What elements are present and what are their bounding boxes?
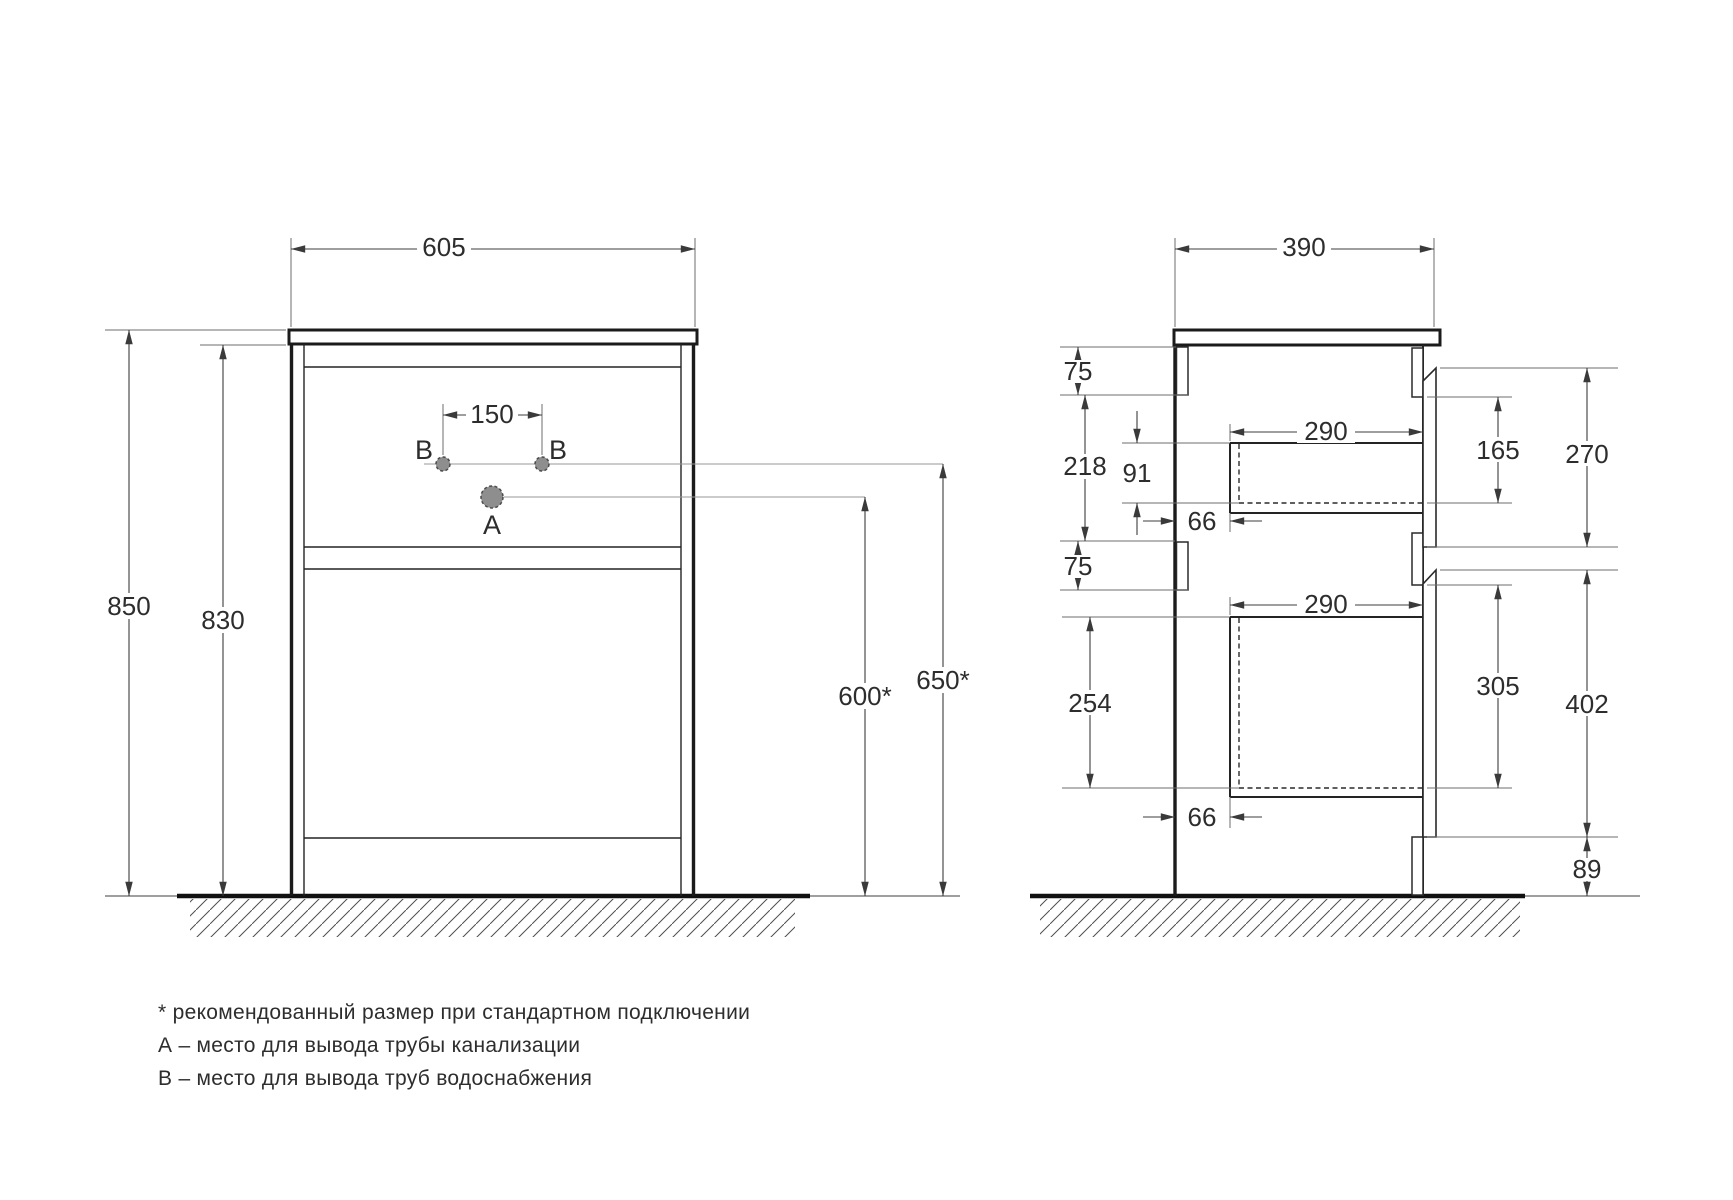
water-hole-right bbox=[535, 457, 549, 471]
dim-drain-height: 600* bbox=[838, 681, 892, 711]
technical-drawing-page: 605 850 830 150 B B A 600* 650* bbox=[0, 0, 1733, 1200]
dim-drawer2-depth: 290 bbox=[1304, 589, 1347, 619]
dim-drawer2-box: 305 bbox=[1476, 671, 1519, 701]
dim-back-top-gap: 218 bbox=[1063, 451, 1106, 481]
back-rail-mid bbox=[1177, 542, 1189, 590]
countertop-side bbox=[1174, 330, 1440, 345]
dim-holes-spacing: 150 bbox=[470, 399, 513, 429]
dim-plinth: 89 bbox=[1573, 854, 1602, 884]
hole-b-left-label: B bbox=[415, 435, 433, 465]
dim-drawer1-front: 270 bbox=[1565, 439, 1608, 469]
dim-drawer2-inner: 254 bbox=[1068, 688, 1111, 718]
dim-top-rail: 75 bbox=[1064, 356, 1093, 386]
hole-a-label: A bbox=[483, 510, 501, 540]
front-rail-bottom bbox=[1412, 837, 1423, 895]
front-rail-mid bbox=[1412, 533, 1423, 585]
drain-hole bbox=[481, 486, 503, 508]
dim-drawer1-back-gap: 66 bbox=[1188, 506, 1217, 536]
back-rail-top bbox=[1177, 347, 1189, 395]
floor-hatch bbox=[190, 899, 795, 937]
dim-drawer2-front: 402 bbox=[1565, 689, 1608, 719]
dim-height-body: 830 bbox=[201, 605, 244, 635]
countertop bbox=[289, 330, 697, 344]
dim-drawer2-back-gap: 66 bbox=[1188, 802, 1217, 832]
drawer-front-bottom bbox=[1423, 570, 1436, 837]
front-rail-top bbox=[1412, 348, 1423, 397]
footnote-hole-b: В – место для вывода труб водоснабжения bbox=[158, 1067, 592, 1090]
dim-mid-rail: 75 bbox=[1064, 551, 1093, 581]
hole-b-right-label: B bbox=[549, 435, 567, 465]
footnote-hole-a: А – место для вывода трубы канализации bbox=[158, 1034, 580, 1057]
vanity-installation-drawing: 605 850 830 150 B B A 600* 650* bbox=[0, 0, 1733, 1200]
dim-height-total: 850 bbox=[107, 591, 150, 621]
water-hole-left bbox=[436, 457, 450, 471]
dim-drawer1-inner: 91 bbox=[1123, 458, 1152, 488]
dim-drawer1-depth: 290 bbox=[1304, 416, 1347, 446]
dim-front-width: 605 bbox=[422, 232, 465, 262]
floor-hatch-side bbox=[1040, 899, 1520, 937]
dim-depth: 390 bbox=[1282, 232, 1325, 262]
drawer-front-top bbox=[1423, 368, 1436, 547]
dim-water-height: 650* bbox=[916, 665, 970, 695]
footnote-recommended-size: * рекомендованный размер при стандартном… bbox=[158, 1001, 750, 1024]
dim-drawer1-box: 165 bbox=[1476, 435, 1519, 465]
